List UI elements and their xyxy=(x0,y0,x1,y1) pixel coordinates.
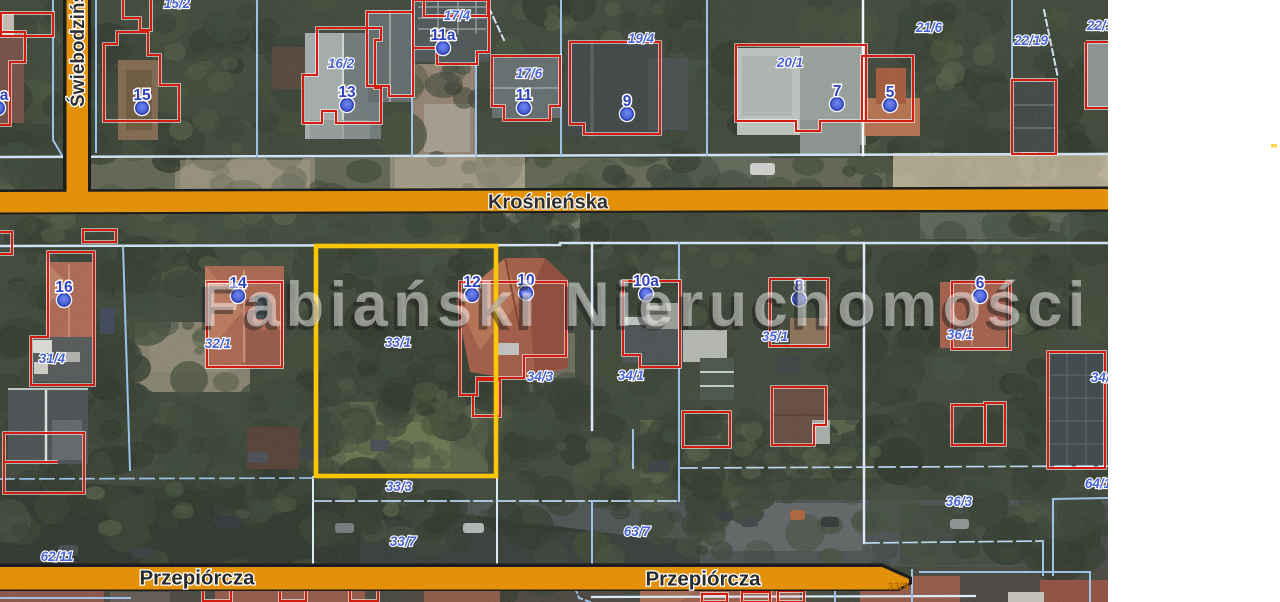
svg-text:15/2: 15/2 xyxy=(164,0,191,11)
svg-text:22/19: 22/19 xyxy=(1013,33,1048,48)
svg-text:20/1: 20/1 xyxy=(776,55,803,70)
svg-text:Przepiórcza: Przepiórcza xyxy=(139,567,255,590)
svg-text:33/7: 33/7 xyxy=(390,534,418,549)
svg-text:9: 9 xyxy=(623,93,632,110)
svg-text:33/3: 33/3 xyxy=(386,479,413,494)
svg-text:17/6: 17/6 xyxy=(516,66,543,81)
svg-text:7: 7 xyxy=(833,83,842,100)
svg-text:16: 16 xyxy=(55,279,73,296)
svg-text:15: 15 xyxy=(133,87,151,104)
svg-text:62/11: 62/11 xyxy=(41,549,74,564)
svg-text:Świebodzińska: Świebodzińska xyxy=(67,0,89,107)
svg-text:34/3: 34/3 xyxy=(527,369,554,384)
svg-text:34/1: 34/1 xyxy=(618,368,644,383)
svg-text:33/9: 33/9 xyxy=(887,581,908,593)
svg-text:16/2: 16/2 xyxy=(328,56,355,71)
svg-text:31/4: 31/4 xyxy=(39,351,66,366)
svg-text:64/1: 64/1 xyxy=(1085,476,1111,491)
svg-text:21/6: 21/6 xyxy=(915,20,943,35)
svg-text:63/7: 63/7 xyxy=(624,524,652,539)
svg-text:Przepiórcza: Przepiórcza xyxy=(645,568,761,591)
svg-text:a: a xyxy=(0,87,9,104)
svg-text:Krośnieńska: Krośnieńska xyxy=(488,192,609,214)
svg-text:19/4: 19/4 xyxy=(628,31,655,46)
svg-text:Fabiański Nieruchomości: Fabiański Nieruchomości xyxy=(201,270,1091,340)
svg-text:11a: 11a xyxy=(430,27,455,44)
svg-text:13: 13 xyxy=(338,84,356,101)
svg-text:5: 5 xyxy=(886,84,895,101)
svg-text:17/4: 17/4 xyxy=(444,8,471,23)
svg-text:11: 11 xyxy=(516,87,533,104)
svg-text:36/3: 36/3 xyxy=(946,494,973,509)
